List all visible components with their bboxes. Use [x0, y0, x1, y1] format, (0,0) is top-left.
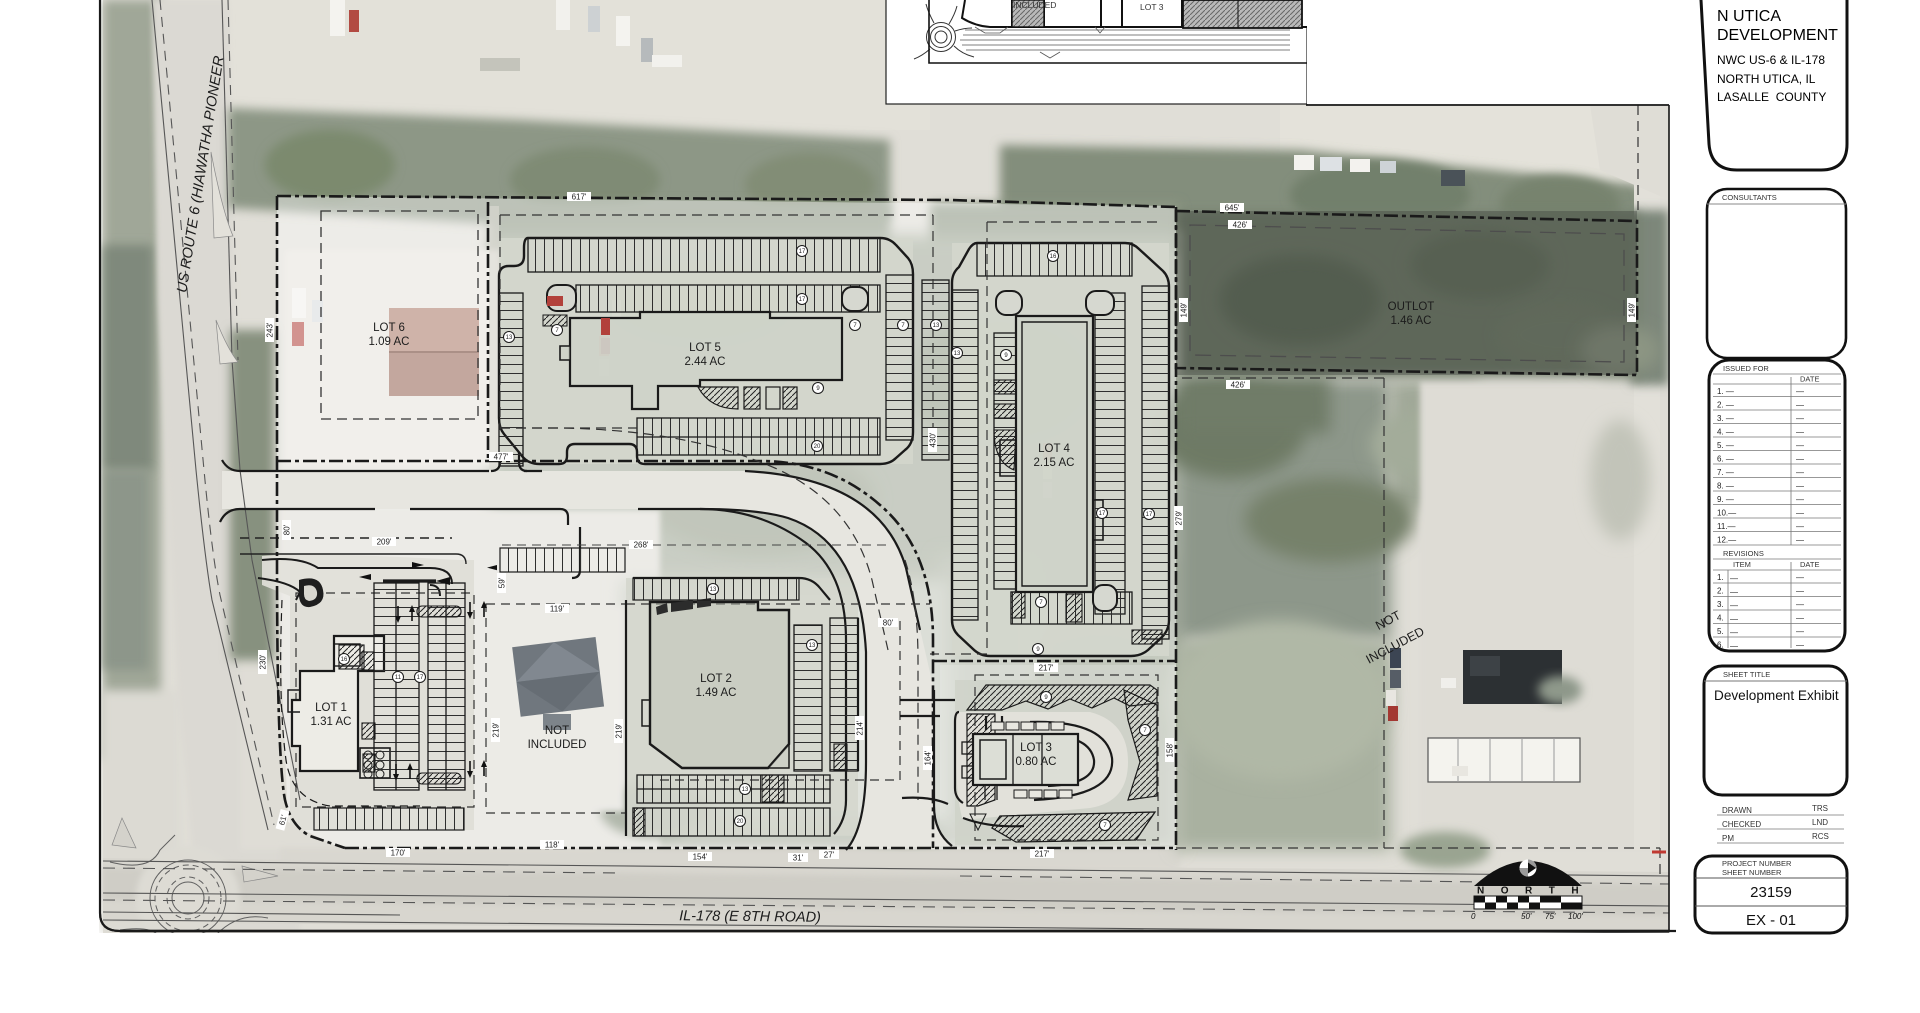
- svg-text:—: —: [1796, 495, 1804, 504]
- svg-text:16: 16: [341, 657, 348, 663]
- svg-text:—: —: [1730, 642, 1738, 651]
- svg-text:645': 645': [1225, 204, 1240, 213]
- svg-text:149': 149': [1180, 302, 1189, 317]
- svg-text:17: 17: [417, 675, 424, 681]
- svg-text:6.: 6.: [1717, 641, 1724, 650]
- svg-text:RCS: RCS: [1812, 832, 1829, 841]
- svg-text:INCLUDED: INCLUDED: [1013, 0, 1056, 10]
- svg-text:—: —: [1730, 574, 1738, 583]
- svg-text:LOT 4: LOT 4: [1038, 443, 1070, 455]
- svg-text:—: —: [1796, 387, 1804, 396]
- svg-text:27': 27': [824, 851, 835, 860]
- svg-text:NWC US-6 & IL-178: NWC US-6 & IL-178: [1717, 53, 1825, 67]
- svg-text:13: 13: [809, 643, 816, 649]
- svg-text:IL-178 (E 8TH ROAD): IL-178 (E 8TH ROAD): [679, 908, 821, 925]
- svg-text:SHEET TITLE: SHEET TITLE: [1723, 670, 1770, 679]
- svg-text:31': 31': [793, 854, 804, 863]
- svg-text:219': 219': [492, 722, 501, 737]
- svg-text:268': 268': [634, 541, 649, 550]
- svg-text:219': 219': [615, 723, 624, 738]
- svg-text:20: 20: [737, 819, 744, 825]
- svg-text:NORTH UTICA, IL: NORTH UTICA, IL: [1717, 72, 1816, 86]
- svg-text:17: 17: [1099, 511, 1106, 517]
- svg-text:PM: PM: [1722, 834, 1734, 843]
- svg-text:LND: LND: [1812, 818, 1828, 827]
- svg-text:11: 11: [395, 675, 402, 681]
- svg-text:50': 50': [1521, 912, 1532, 921]
- svg-text:—: —: [1796, 455, 1804, 464]
- svg-text:Development Exhibit: Development Exhibit: [1714, 688, 1839, 703]
- svg-text:5. —: 5. —: [1717, 441, 1734, 450]
- svg-text:617': 617': [572, 193, 587, 202]
- svg-text:SHEET NUMBER: SHEET NUMBER: [1722, 868, 1782, 877]
- svg-text:149': 149': [1628, 302, 1637, 317]
- svg-text:118': 118': [545, 841, 560, 850]
- svg-text:4. —: 4. —: [1717, 428, 1734, 437]
- svg-text:13: 13: [933, 323, 940, 329]
- svg-text:2. —: 2. —: [1717, 401, 1734, 410]
- svg-text:—: —: [1796, 522, 1804, 531]
- svg-text:—: —: [1730, 615, 1738, 624]
- svg-text:CONSULTANTS: CONSULTANTS: [1722, 193, 1777, 202]
- svg-text:1. —: 1. —: [1717, 387, 1734, 396]
- svg-text:2.15 AC: 2.15 AC: [1034, 457, 1075, 469]
- svg-text:—: —: [1796, 627, 1804, 636]
- svg-text:CHECKED: CHECKED: [1722, 820, 1761, 829]
- svg-text:158': 158': [1166, 742, 1175, 757]
- svg-text:279': 279': [1175, 510, 1184, 525]
- svg-text:0: 0: [1471, 912, 1476, 921]
- svg-text:13: 13: [506, 335, 513, 341]
- svg-text:—: —: [1796, 587, 1804, 596]
- svg-text:—: —: [1796, 482, 1804, 491]
- svg-text:17: 17: [799, 297, 806, 303]
- svg-text:—: —: [1796, 536, 1804, 545]
- svg-text:23159: 23159: [1750, 884, 1792, 901]
- svg-text:LOT 1: LOT 1: [315, 702, 347, 714]
- svg-text:DEVELOPMENT: DEVELOPMENT: [1717, 27, 1838, 44]
- svg-text:ISSUED FOR: ISSUED FOR: [1723, 364, 1769, 373]
- svg-text:—: —: [1796, 600, 1804, 609]
- svg-text:154': 154': [693, 853, 708, 862]
- svg-text:0.80 AC: 0.80 AC: [1016, 756, 1057, 768]
- svg-text:80': 80': [883, 619, 894, 628]
- svg-text:13: 13: [710, 587, 717, 593]
- svg-text:2.: 2.: [1717, 587, 1724, 596]
- svg-text:TRS: TRS: [1812, 804, 1828, 813]
- svg-text:4.: 4.: [1717, 614, 1724, 623]
- svg-text:243': 243': [266, 322, 275, 337]
- svg-text:1.: 1.: [1717, 573, 1724, 582]
- svg-text:16: 16: [1050, 254, 1057, 260]
- svg-text:—: —: [1730, 628, 1738, 637]
- svg-text:—: —: [1796, 468, 1804, 477]
- svg-text:ITEM: ITEM: [1733, 560, 1751, 569]
- svg-text:10.—: 10.—: [1717, 509, 1736, 518]
- svg-text:—: —: [1796, 401, 1804, 410]
- svg-text:INCLUDED: INCLUDED: [528, 739, 587, 751]
- svg-text:1.31 AC: 1.31 AC: [311, 716, 352, 728]
- svg-text:LOT 3: LOT 3: [1020, 742, 1052, 754]
- svg-text:9. —: 9. —: [1717, 495, 1734, 504]
- svg-text:80': 80': [283, 524, 292, 535]
- svg-text:119': 119': [550, 605, 565, 614]
- svg-text:—: —: [1730, 588, 1738, 597]
- svg-text:17: 17: [1146, 512, 1153, 518]
- svg-text:477': 477': [494, 453, 509, 462]
- svg-text:13: 13: [742, 787, 749, 793]
- svg-text:—: —: [1796, 414, 1804, 423]
- svg-text:LOT 2: LOT 2: [700, 673, 732, 685]
- svg-text:1.09 AC: 1.09 AC: [369, 336, 410, 348]
- svg-text:230': 230': [259, 654, 268, 669]
- svg-text:3.: 3.: [1717, 600, 1724, 609]
- svg-text:426': 426': [1231, 381, 1246, 390]
- svg-text:DRAWN: DRAWN: [1722, 806, 1752, 815]
- svg-text:LOT 5: LOT 5: [689, 342, 721, 354]
- svg-text:OUTLOT: OUTLOT: [1388, 301, 1435, 313]
- svg-text:LASALLE COUNTY: LASALLE COUNTY: [1717, 90, 1826, 104]
- svg-text:EX - 01: EX - 01: [1746, 912, 1796, 929]
- svg-text:3. —: 3. —: [1717, 414, 1734, 423]
- svg-text:—: —: [1730, 601, 1738, 610]
- svg-text:1.49 AC: 1.49 AC: [696, 687, 737, 699]
- svg-text:8. —: 8. —: [1717, 482, 1734, 491]
- svg-text:59': 59': [498, 577, 507, 588]
- svg-text:DATE: DATE: [1800, 375, 1819, 384]
- svg-text:2.44 AC: 2.44 AC: [685, 356, 726, 368]
- svg-text:11.—: 11.—: [1717, 522, 1736, 531]
- svg-text:LOT 3: LOT 3: [1140, 2, 1164, 12]
- svg-text:—: —: [1796, 441, 1804, 450]
- svg-text:—: —: [1796, 509, 1804, 518]
- svg-text:217': 217': [1039, 664, 1054, 673]
- svg-text:REVISIONS: REVISIONS: [1723, 549, 1764, 558]
- svg-text:LOT 6: LOT 6: [373, 322, 405, 334]
- svg-text:PROJECT NUMBER: PROJECT NUMBER: [1722, 859, 1792, 868]
- svg-text:426': 426': [1233, 221, 1248, 230]
- svg-text:DATE: DATE: [1800, 560, 1819, 569]
- svg-text:17: 17: [799, 249, 806, 255]
- svg-text:75': 75': [1545, 912, 1556, 921]
- svg-text:—: —: [1796, 428, 1804, 437]
- svg-text:NOT: NOT: [545, 725, 569, 737]
- svg-text:7. —: 7. —: [1717, 468, 1734, 477]
- svg-text:NORTH: NORTH: [1477, 886, 1595, 897]
- svg-text:5.: 5.: [1717, 627, 1724, 636]
- svg-text:20: 20: [814, 444, 821, 450]
- svg-text:214': 214': [856, 720, 865, 735]
- svg-text:12.—: 12.—: [1717, 536, 1736, 545]
- svg-text:6. —: 6. —: [1717, 455, 1734, 464]
- svg-text:164': 164': [924, 750, 933, 765]
- svg-text:N UTICA: N UTICA: [1717, 8, 1781, 25]
- svg-text:170': 170': [391, 849, 406, 858]
- svg-text:209': 209': [377, 538, 392, 547]
- svg-text:13: 13: [954, 351, 961, 357]
- svg-text:430': 430': [929, 432, 938, 447]
- svg-text:100': 100': [1568, 912, 1583, 921]
- svg-text:217': 217': [1035, 850, 1050, 859]
- svg-text:—: —: [1796, 614, 1804, 623]
- svg-text:1.46 AC: 1.46 AC: [1391, 315, 1432, 327]
- svg-text:—: —: [1796, 641, 1804, 650]
- svg-text:—: —: [1796, 573, 1804, 582]
